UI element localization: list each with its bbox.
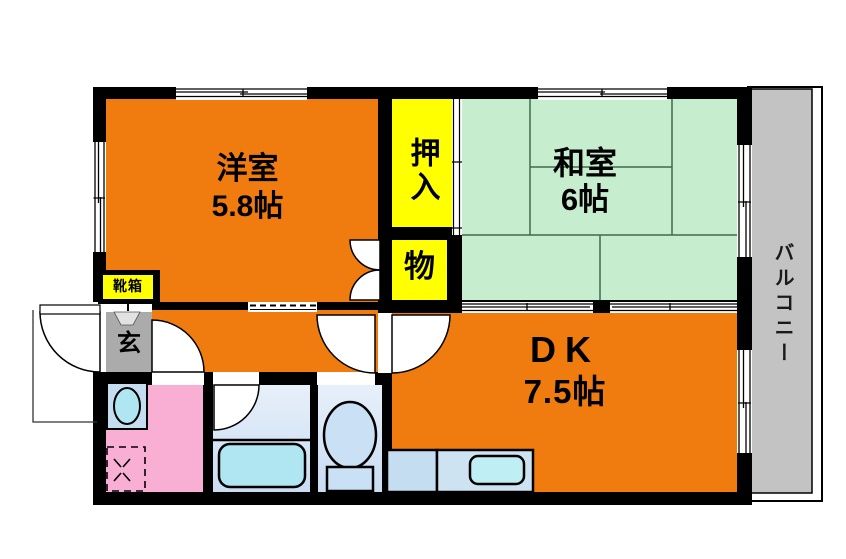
storage-closet-floor (392, 240, 447, 300)
dk-doorway (378, 313, 392, 373)
toilet-tank-icon (327, 467, 373, 491)
oshiire-closet-floor (392, 99, 452, 227)
floor-plan-drawing (0, 0, 846, 559)
shoe-box (103, 275, 153, 299)
sliding-door-western-hall (248, 302, 317, 312)
toilet-doorway (317, 372, 375, 385)
bathtub-icon (219, 444, 305, 487)
sliding-door-center-post (593, 302, 610, 313)
balcony-floor (750, 89, 812, 493)
floor-plan: 洋室 5.8帖 和室 6帖 DK 7.5帖 押入 物 バルコニー 玄 靴箱 (0, 0, 846, 559)
kitchen-counter-left (387, 450, 437, 492)
kitchen-sink-icon (470, 456, 524, 484)
toilet-icon (324, 402, 376, 468)
bathroom-doorway (213, 372, 259, 385)
front-door-swing (40, 312, 100, 372)
wash-basin-icon (114, 388, 140, 424)
washroom-doorway (152, 372, 204, 385)
front-door-leaf (40, 305, 100, 314)
